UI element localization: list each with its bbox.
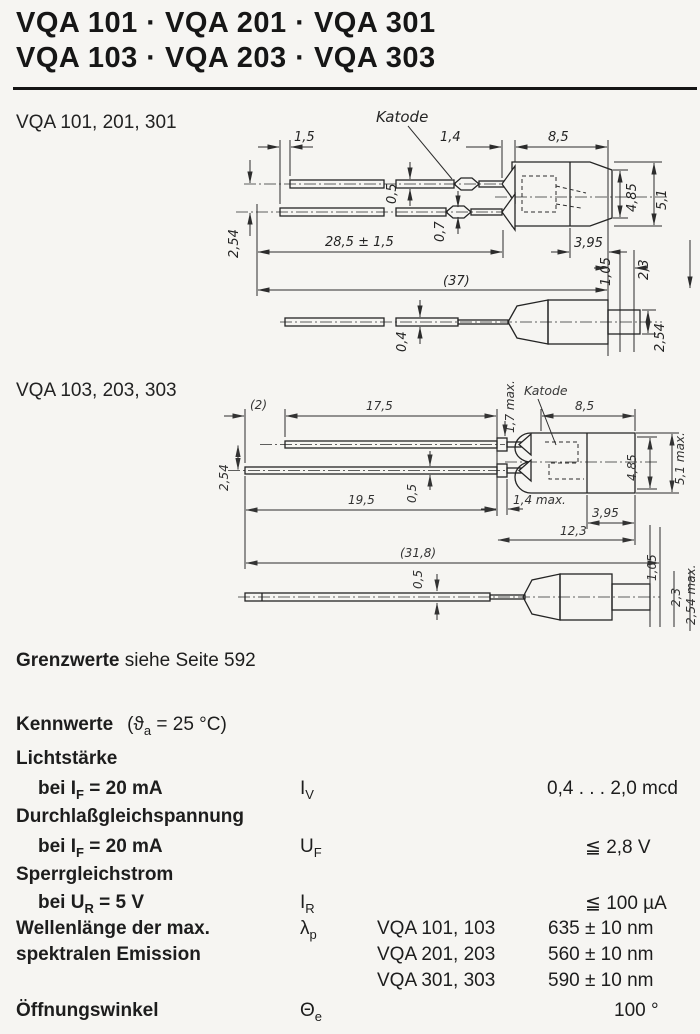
dimension-drawing-vqa101: Katode 1,5 1,4 8,5 0,5 0,7 28,5 ± 1,5 (3… bbox=[0, 100, 700, 372]
row-sperr-condition: bei UR = 5 V bbox=[38, 892, 144, 916]
characteristics-heading: Kennwerte(ϑa = 25 °C) bbox=[16, 714, 227, 738]
dim-total-length: (37) bbox=[443, 274, 470, 289]
limits-label: Grenzwerte bbox=[16, 650, 119, 671]
dim-collar-length: 1,4 max. bbox=[513, 493, 566, 507]
row-lichtstaerke-name: Lichtstärke bbox=[16, 748, 117, 770]
row-durchlass-symbol: UF bbox=[300, 836, 322, 860]
dim-side-lead-thickness: 0,5 bbox=[411, 570, 425, 589]
row-sperr-value: ≦ 100 µA bbox=[585, 892, 667, 915]
dim-tip-length: 1,7 max. bbox=[503, 380, 517, 433]
led-body-outline bbox=[512, 162, 612, 226]
title-divider bbox=[13, 87, 697, 90]
dim-standoff-2: 2,3 bbox=[637, 259, 652, 280]
dim-body-total: 12,3 bbox=[560, 524, 587, 538]
ambient-condition: (ϑa = 25 °C) bbox=[127, 714, 227, 735]
variant-value-1: 560 ± 10 nm bbox=[548, 944, 654, 966]
row-wellenlaenge-name-2: spektralen Emission bbox=[16, 944, 201, 966]
variant-type-0: VQA 101, 103 bbox=[377, 918, 495, 940]
katode-label: Katode bbox=[376, 108, 428, 126]
dim-body-dia-outer: 5,1 max. bbox=[673, 432, 687, 485]
limits-text: siehe Seite 592 bbox=[119, 650, 255, 671]
dim-lead-offset: 1,5 bbox=[294, 130, 315, 145]
row-lichtstaerke-value: 0,4 . . . 2,0 mcd bbox=[547, 778, 678, 800]
dim-lead-thickness-bottom: 0,7 bbox=[433, 221, 448, 242]
characteristics-title: Kennwerte bbox=[16, 714, 113, 735]
katode-label: Katode bbox=[524, 383, 568, 398]
dim-side-height: 2,54 max. bbox=[684, 565, 698, 626]
side-view bbox=[280, 300, 662, 344]
row-oeffnungswinkel-value: 100 ° bbox=[614, 1000, 659, 1022]
dim-body-dia-inner: 4,85 bbox=[625, 454, 639, 481]
row-lichtstaerke-symbol: IV bbox=[300, 778, 314, 802]
limits-note: Grenzwerte siehe Seite 592 bbox=[16, 650, 256, 672]
dim-lead-thickness: 0,5 bbox=[405, 484, 419, 503]
row-durchlass-name: Durchlaßgleichspannung bbox=[16, 806, 244, 828]
dim-lead-offset: (2) bbox=[250, 398, 267, 412]
dim-body-length: 8,5 bbox=[575, 399, 594, 413]
dim-side-lead-thickness: 0,4 bbox=[395, 331, 410, 352]
row-lichtstaerke-condition: bei IF = 20 mA bbox=[38, 778, 163, 802]
title-line-2: VQA 103 · VQA 203 · VQA 303 bbox=[16, 41, 436, 76]
side-view bbox=[238, 525, 690, 631]
row-oeffnungswinkel-name: Öffnungswinkel bbox=[16, 1000, 159, 1022]
dimension-labels: Katode 1,5 1,4 8,5 0,5 0,7 28,5 ± 1,5 (3… bbox=[227, 108, 670, 352]
dim-side-height: 2,54 bbox=[653, 323, 668, 352]
variant-type-2: VQA 301, 303 bbox=[377, 970, 495, 992]
dim-lead-segment: 17,5 bbox=[366, 399, 393, 413]
row-durchlass-condition: bei IF = 20 mA bbox=[38, 836, 163, 860]
page-title: VQA 101 · VQA 201 · VQA 301 VQA 103 · VQ… bbox=[16, 6, 436, 76]
variant-type-1: VQA 201, 203 bbox=[377, 944, 495, 966]
dim-lead-length: 19,5 bbox=[348, 493, 375, 507]
dim-flange: 1,4 bbox=[440, 130, 461, 145]
dim-lead-pitch: 2,54 bbox=[217, 464, 231, 491]
row-wellenlaenge-symbol: λp bbox=[300, 918, 317, 942]
dim-standoff-1: 1,05 bbox=[599, 257, 614, 286]
dim-front-length: 3,95 bbox=[592, 506, 619, 520]
dimension-labels: Katode (2) 17,5 1,7 max. 8,5 2,54 19,5 0… bbox=[217, 380, 698, 625]
dim-lead-thickness-top: 0,5 bbox=[385, 183, 400, 204]
led-body-outline bbox=[515, 433, 635, 493]
variant-value-2: 590 ± 10 nm bbox=[548, 970, 654, 992]
dim-lead-pitch: 2,54 bbox=[227, 229, 242, 258]
dim-body-length: 8,5 bbox=[548, 130, 569, 145]
dim-standoff-1: 1,05 bbox=[645, 554, 659, 581]
dim-total-length: (31,8) bbox=[400, 546, 436, 560]
row-sperr-symbol: IR bbox=[300, 892, 315, 916]
row-durchlass-value: ≦ 2,8 V bbox=[585, 836, 651, 859]
dim-body-dia-inner: 4,85 bbox=[625, 183, 640, 212]
dim-standoff-2: 2,3 bbox=[669, 588, 683, 607]
title-line-1: VQA 101 · VQA 201 · VQA 301 bbox=[16, 6, 436, 41]
row-sperr-name: Sperrgleichstrom bbox=[16, 864, 173, 886]
led-leads bbox=[245, 434, 531, 481]
row-oeffnungswinkel-symbol: Θe bbox=[300, 1000, 322, 1024]
dim-lead-length: 28,5 ± 1,5 bbox=[325, 235, 394, 250]
dimension-drawing-vqa103: Katode (2) 17,5 1,7 max. 8,5 2,54 19,5 0… bbox=[0, 375, 700, 637]
dimension-lines bbox=[250, 126, 690, 356]
variant-value-0: 635 ± 10 nm bbox=[548, 918, 654, 940]
dim-body-dia-outer: 5,1 bbox=[655, 189, 670, 210]
datasheet-page: VQA 101 · VQA 201 · VQA 301 VQA 103 · VQ… bbox=[0, 0, 700, 1034]
row-wellenlaenge-name-1: Wellenlänge der max. bbox=[16, 918, 210, 940]
dim-front-length: 3,95 bbox=[574, 236, 603, 251]
